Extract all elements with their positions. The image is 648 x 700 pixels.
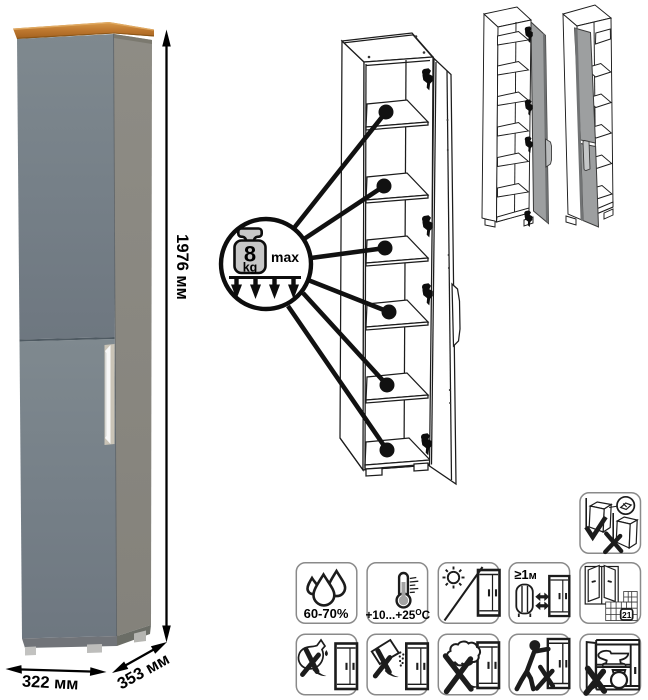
- svg-text:+10...+25OC: +10...+25OC: [365, 608, 430, 622]
- svg-text:353 мм: 353 мм: [114, 650, 172, 693]
- svg-text:max: max: [271, 249, 299, 265]
- svg-text:≥1м: ≥1м: [514, 567, 537, 582]
- svg-text:60-70%: 60-70%: [304, 606, 349, 621]
- svg-text:21: 21: [622, 610, 632, 620]
- svg-text:1976 мм: 1976 мм: [173, 234, 191, 300]
- svg-text:kg: kg: [243, 261, 258, 275]
- svg-text:322 мм: 322 мм: [22, 673, 79, 694]
